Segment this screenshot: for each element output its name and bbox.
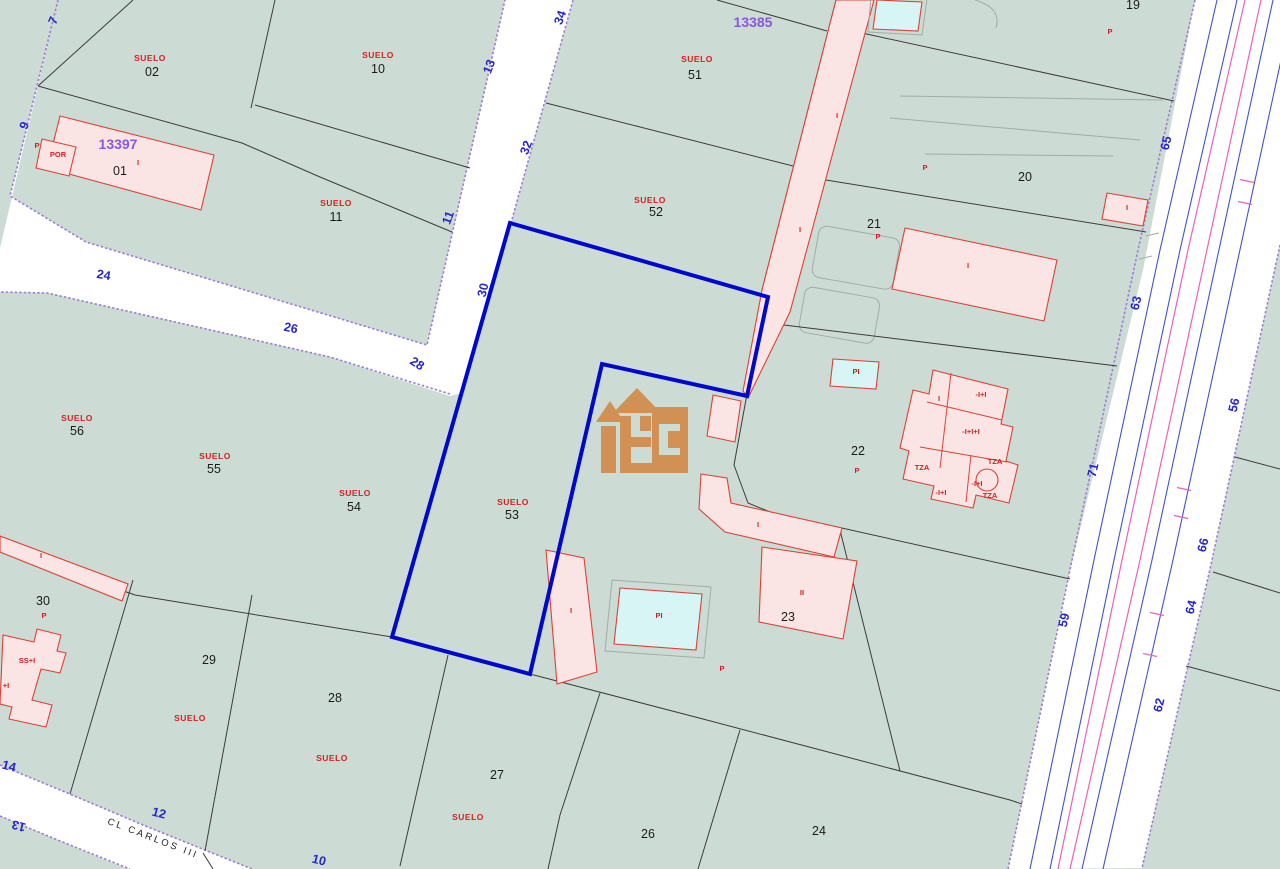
parcel-27-suelo: SUELO xyxy=(452,812,484,822)
building-label: I xyxy=(757,520,759,529)
building-label: II xyxy=(800,588,804,597)
parcel-53-number: 53 xyxy=(505,508,519,522)
building-label: I xyxy=(40,551,42,560)
building-label-tza: TZA xyxy=(983,491,998,500)
parcel-28-number: 28 xyxy=(328,691,342,705)
street-number-26: 26 xyxy=(283,320,300,337)
parcel-26-number: 26 xyxy=(641,827,655,841)
building-label-tza: TZA xyxy=(988,457,1003,466)
building-label: -I+I xyxy=(971,479,982,488)
parcel-11-suelo: SUELO xyxy=(320,198,352,208)
building-notch xyxy=(707,395,741,442)
parcel-54-suelo: SUELO xyxy=(339,488,371,498)
parcel-10-number: 10 xyxy=(371,62,385,76)
parcel-30-number: 30 xyxy=(36,594,50,608)
pool-parcel19 xyxy=(873,0,922,31)
building-label: -I+I xyxy=(975,390,986,399)
parcel-52-suelo: SUELO xyxy=(634,195,666,205)
parcel-51-number: 51 xyxy=(688,68,702,82)
parcel-20-number: 20 xyxy=(1018,170,1032,184)
parcel-56-number: 56 xyxy=(70,424,84,438)
building-label: I xyxy=(1126,203,1128,212)
pool-label: PI xyxy=(852,367,859,376)
parcel-55-number: 55 xyxy=(207,462,221,476)
parcel-19-number: 19 xyxy=(1126,0,1140,12)
parcel-55-suelo: SUELO xyxy=(199,451,231,461)
building-label: -I+I+I xyxy=(962,427,980,436)
parcel-29-number: 29 xyxy=(202,653,216,667)
building-label: SS+I xyxy=(19,656,35,665)
block-code-13385: 13385 xyxy=(734,14,773,30)
cadastral-map-canvas[interactable]: SUELO02SUELO10SUELO11SUELO51SUELO52SUELO… xyxy=(0,0,1280,869)
parcel-22-number: 22 xyxy=(851,444,865,458)
building-label: P xyxy=(922,163,927,172)
building-label: I xyxy=(799,225,801,234)
building-parcel23-ii xyxy=(759,547,857,639)
cadastral-map-stage: SUELO02SUELO10SUELO11SUELO51SUELO52SUELO… xyxy=(0,0,1280,869)
building-label: P xyxy=(34,141,39,150)
building-label: I xyxy=(938,394,940,403)
parcel-23-number: 23 xyxy=(781,610,795,624)
parcel-56-suelo: SUELO xyxy=(61,413,93,423)
building-label: P xyxy=(719,664,724,673)
building-label: P xyxy=(875,232,880,241)
parcel-54-number: 54 xyxy=(347,500,361,514)
parcel-01-number: 01 xyxy=(113,164,127,178)
building-label: I xyxy=(967,261,969,270)
building-label: I xyxy=(570,606,572,615)
building-label: P xyxy=(41,611,46,620)
parcel-29-suelo: SUELO xyxy=(174,713,206,723)
building-label-por: POR xyxy=(50,150,67,159)
parcel-10-suelo: SUELO xyxy=(362,50,394,60)
building-label: +I xyxy=(3,681,9,690)
pool-label: PI xyxy=(655,611,662,620)
parcel-51-suelo: SUELO xyxy=(681,54,713,64)
street-number-24: 24 xyxy=(96,267,112,283)
parcel-21-number: 21 xyxy=(867,217,881,231)
building-label: -I+I xyxy=(935,488,946,497)
parcel-53-suelo: SUELO xyxy=(497,497,529,507)
building-label: I xyxy=(137,158,139,167)
parcel-27-number: 27 xyxy=(490,768,504,782)
parcel-02-number: 02 xyxy=(145,65,159,79)
building-label-tza: TZA xyxy=(915,463,930,472)
block-code-13397: 13397 xyxy=(99,136,138,152)
parcel-11-number: 11 xyxy=(330,210,343,224)
logo-inner xyxy=(668,431,680,448)
parcel-28-suelo: SUELO xyxy=(316,753,348,763)
parcel-52-number: 52 xyxy=(649,205,663,219)
parcel-02-suelo: SUELO xyxy=(134,53,166,63)
building-label: I xyxy=(836,111,838,120)
building-label: P xyxy=(1107,27,1112,36)
parcel-24-number: 24 xyxy=(812,824,826,838)
building-label: P xyxy=(854,466,859,475)
